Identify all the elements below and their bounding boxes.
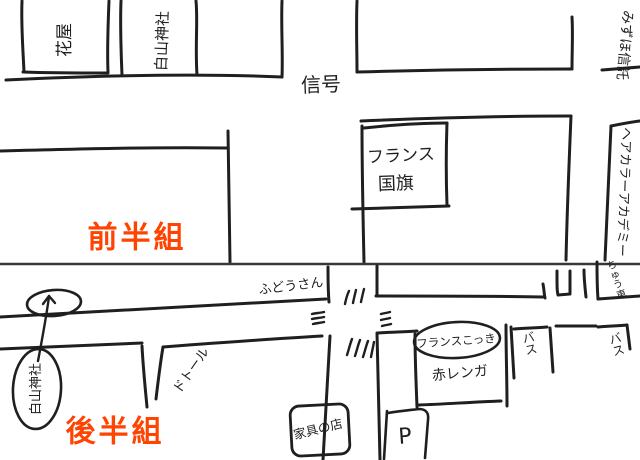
main-road-upper-right: [376, 296, 543, 297]
crosswalk-marks-right: [381, 312, 391, 326]
frontage-tick-2: [584, 270, 586, 297]
cross-street-down-right: [377, 333, 380, 460]
france-flag-label-line1: フランス: [367, 146, 436, 167]
crosswalk-marks-down: [347, 339, 374, 357]
cross-street-down-left: [323, 336, 330, 460]
flower-shop-label: 花屋: [57, 23, 75, 57]
france-flag-label-line2: 国旗: [378, 175, 415, 195]
crosswalk-marks-left: [312, 312, 324, 324]
main-road-lower-mid: [378, 331, 417, 333]
frontage-box: [557, 271, 570, 295]
signal-label: 信号: [301, 74, 342, 96]
first-half-group-label: 前半組: [88, 222, 187, 254]
parking-mark-label: P: [398, 425, 413, 449]
hand-drawn-map-canvas: 花屋 白山神社 信号 みずほ信託 フランス 国旗 ヘアカラーアカデミー 前半組 …: [0, 0, 640, 460]
frontage-tick-1: [543, 284, 545, 298]
side-street-left-edge: [142, 346, 147, 407]
empty-building-top-left: [282, 1, 283, 77]
crosswalk-marks-up: [345, 289, 364, 304]
empty-building-top-right: [357, 1, 573, 72]
second-half-group-label: 後半組: [66, 416, 165, 448]
shrine-label-bottom: 白山神社: [30, 363, 44, 415]
top-road-left-edge: [6, 75, 282, 80]
main-road-lower-left: [0, 343, 142, 349]
cross-street-up-left: [328, 267, 329, 302]
shrine-label-top: 白山神社: [154, 11, 172, 72]
